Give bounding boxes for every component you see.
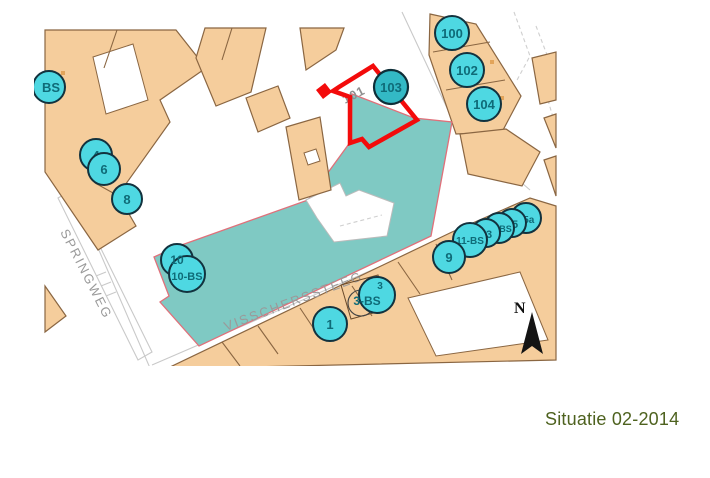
- svg-text:10: 10: [170, 253, 184, 267]
- marker-8: 8: [112, 184, 142, 214]
- svg-text:10-BS: 10-BS: [171, 271, 202, 283]
- svg-text:3: 3: [377, 281, 383, 292]
- svg-text:BS: BS: [42, 80, 60, 95]
- svg-text:9: 9: [445, 250, 452, 265]
- svg-text:3-BS: 3-BS: [353, 294, 380, 308]
- situation-drawing-page: 101 SPRINGWEG VISSCHERSSTEEG BS 4: [0, 0, 710, 478]
- svg-text:100: 100: [441, 26, 463, 41]
- svg-text:104: 104: [473, 97, 495, 112]
- block-left-triangle: [45, 286, 66, 332]
- svg-text:8: 8: [123, 192, 130, 207]
- svg-text:6: 6: [100, 162, 107, 177]
- marker-104: 104: [467, 87, 501, 121]
- svg-text:102: 102: [456, 63, 478, 78]
- svg-text:103: 103: [380, 80, 402, 95]
- caption-title: Situatie 02-2014: [545, 409, 679, 430]
- marker-100: 100: [435, 16, 469, 50]
- marker-bs: BS: [33, 71, 65, 103]
- marker-6: 6: [88, 153, 120, 185]
- north-label: N: [514, 300, 526, 317]
- marker-103-selected: 103: [374, 70, 408, 104]
- marker-102: 102: [450, 53, 484, 87]
- marker-9: 9: [433, 241, 465, 273]
- map-canvas: 101 SPRINGWEG VISSCHERSSTEEG BS 4: [0, 0, 710, 478]
- svg-text:1: 1: [326, 317, 333, 332]
- marker-1: 1: [313, 307, 347, 341]
